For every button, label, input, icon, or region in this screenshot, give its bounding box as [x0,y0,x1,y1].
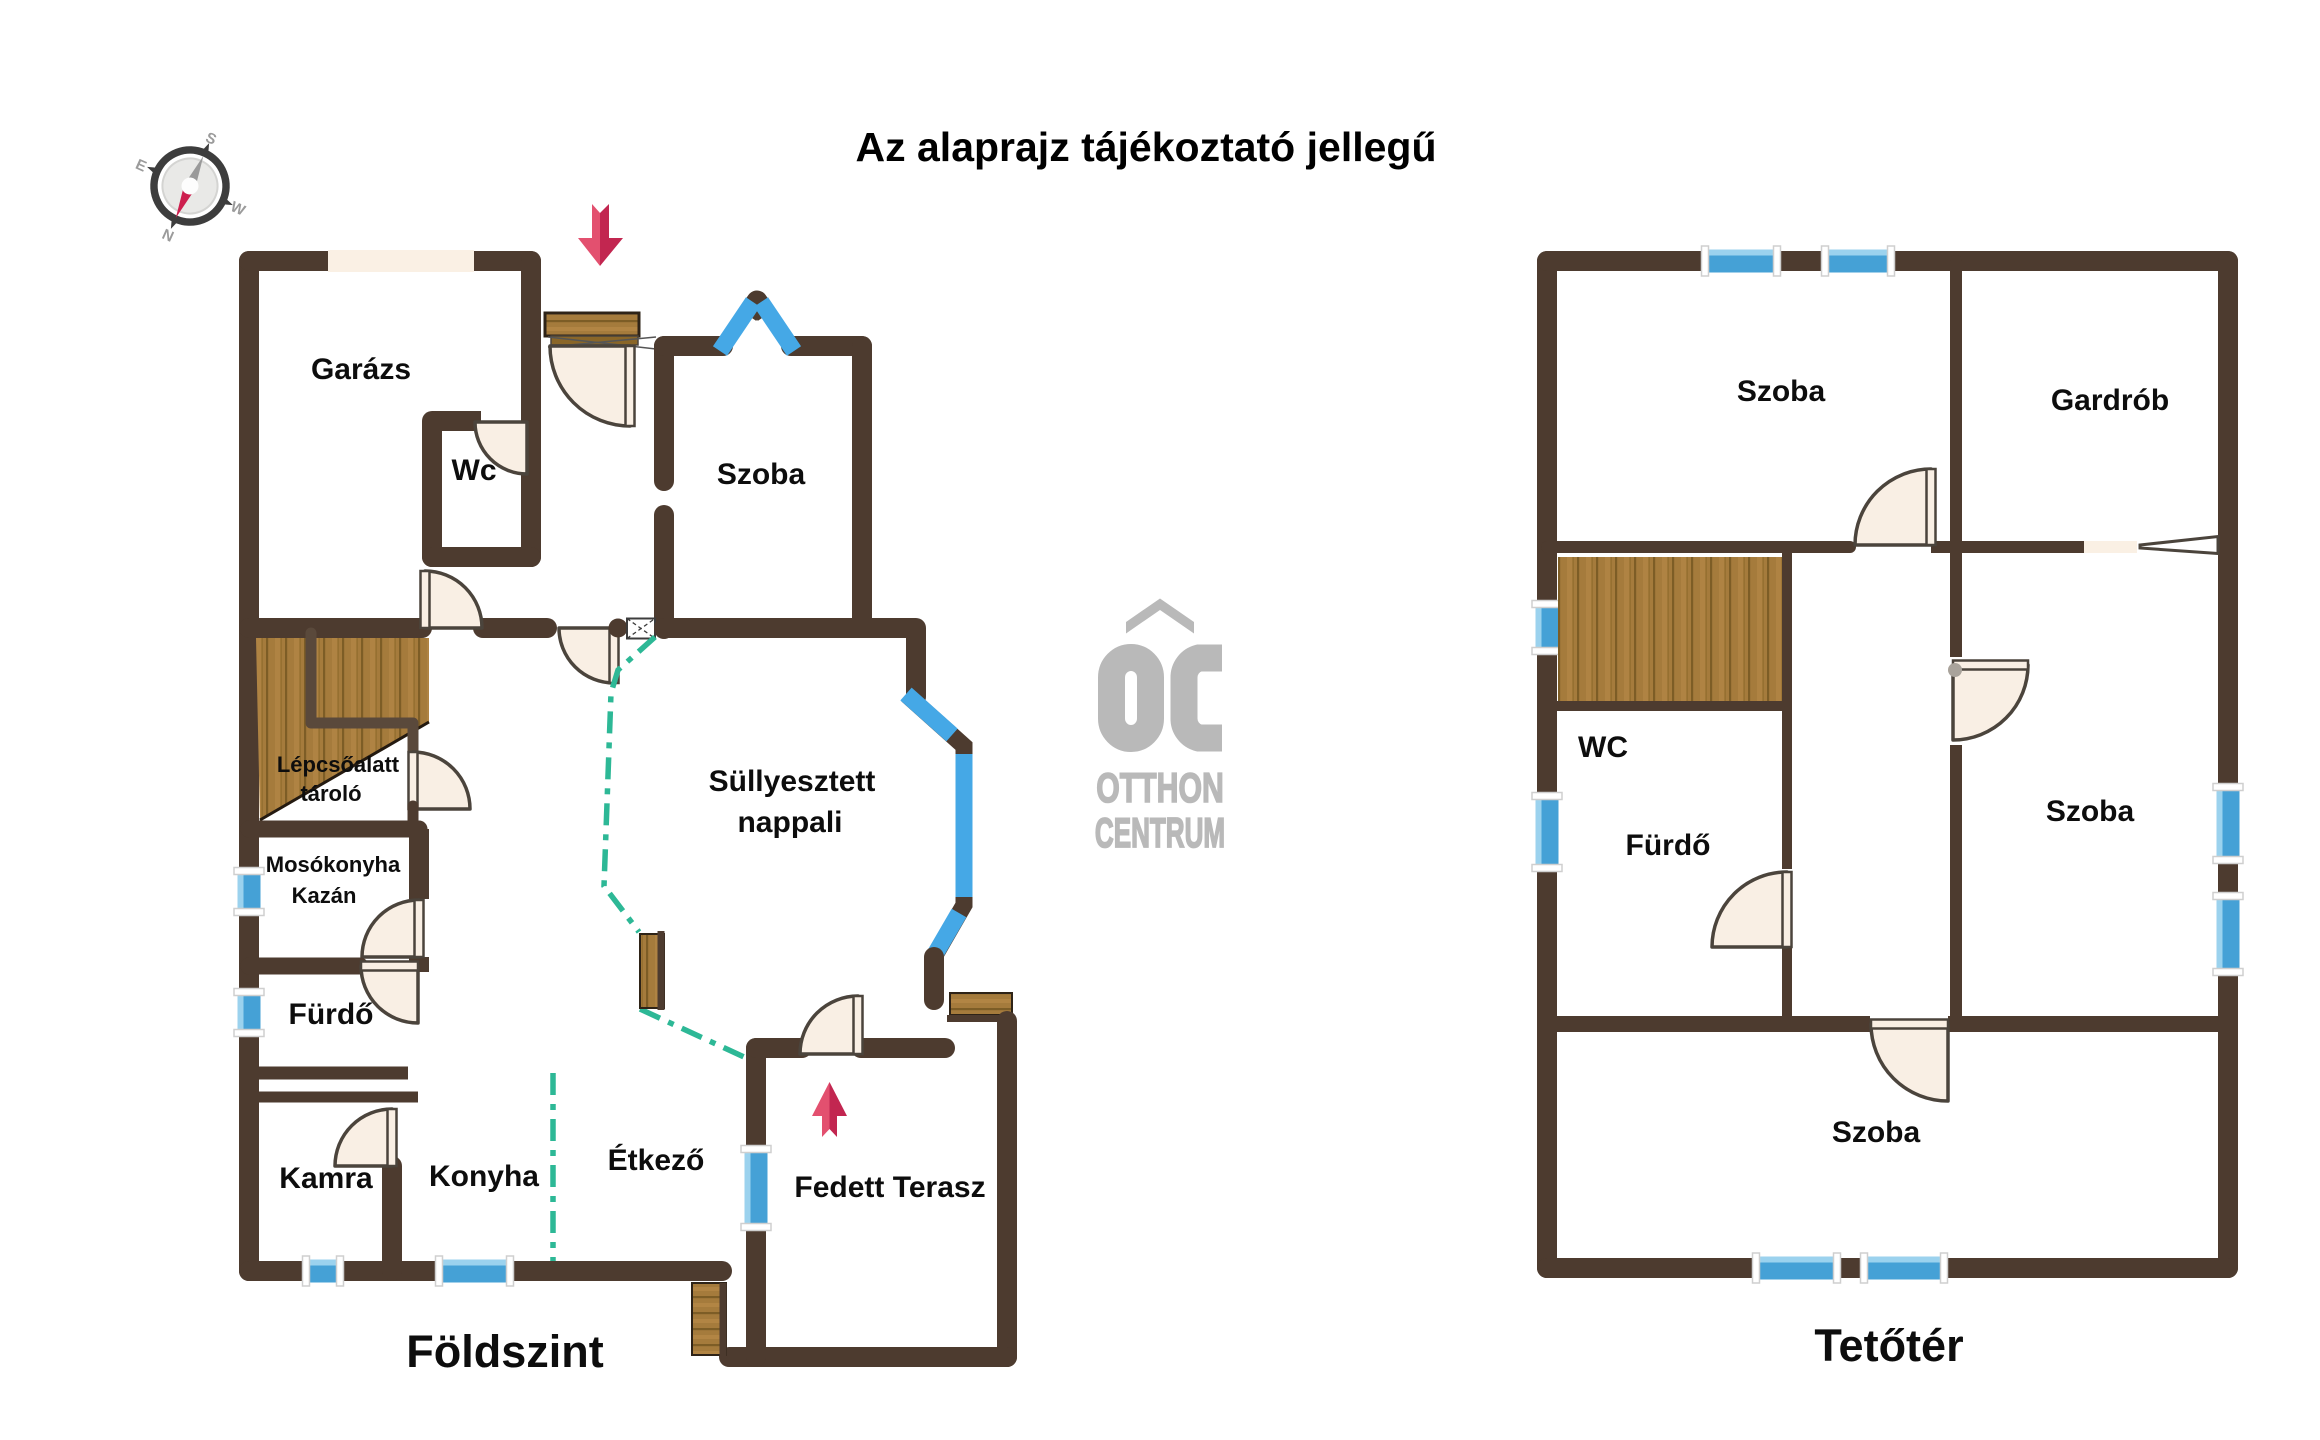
svg-text:tároló: tároló [300,781,361,806]
svg-text:Fürdő: Fürdő [1626,829,1711,862]
svg-text:Lépcsőalatt: Lépcsőalatt [277,752,400,777]
svg-text:Az alaprajz tájékoztató jelleg: Az alaprajz tájékoztató jellegű [856,124,1437,170]
svg-text:Gardrób: Gardrób [2051,384,2169,417]
svg-text:CENTRUM: CENTRUM [1095,810,1225,857]
svg-text:Garázs: Garázs [311,353,411,386]
svg-text:Szoba: Szoba [1737,375,1826,408]
svg-text:Szoba: Szoba [717,458,806,491]
svg-text:Mosókonyha: Mosókonyha [266,852,401,877]
svg-text:Étkező: Étkező [608,1143,705,1177]
svg-text:Fedett Terasz: Fedett Terasz [794,1171,985,1204]
svg-text:Földszint: Földszint [406,1326,603,1377]
svg-text:Tetőtér: Tetőtér [1814,1320,1963,1371]
svg-text:Szoba: Szoba [1832,1116,1921,1149]
svg-text:Konyha: Konyha [429,1160,539,1193]
svg-text:Wc: Wc [452,454,497,487]
svg-text:Süllyesztett: Süllyesztett [709,765,876,798]
svg-text:Kazán: Kazán [292,883,357,908]
svg-text:Kamra: Kamra [279,1162,373,1195]
svg-text:WC: WC [1578,731,1628,764]
svg-text:nappali: nappali [737,806,842,839]
svg-text:OTTHON: OTTHON [1096,764,1224,811]
svg-text:Fürdő: Fürdő [289,998,374,1031]
svg-text:Szoba: Szoba [2046,795,2135,828]
